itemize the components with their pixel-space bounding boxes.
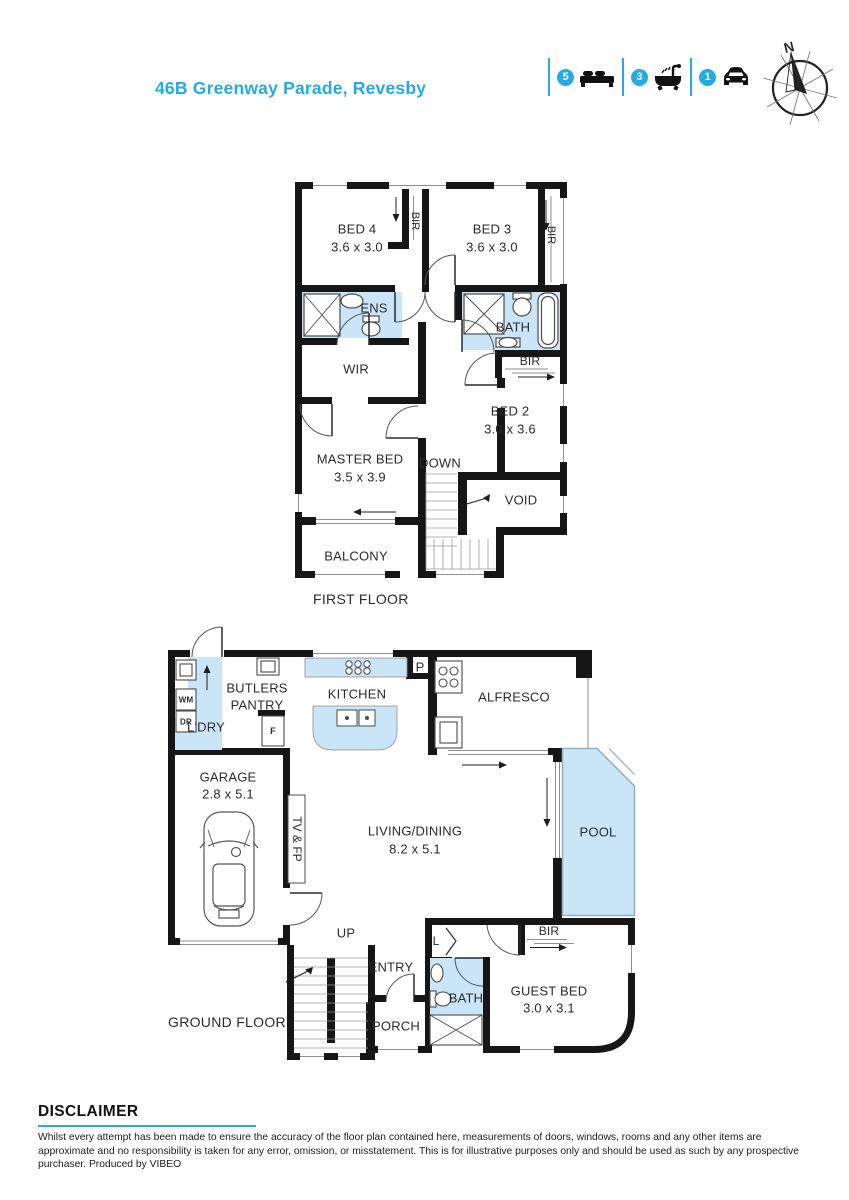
floorplan-graphics [0,0,849,1200]
disclaimer-body: Whilst every attempt has been made to en… [38,1131,816,1172]
alfresco-fixtures [435,661,462,748]
room-label-wir: WIR [343,362,369,377]
room-label-void: VOID [505,493,538,508]
stairs-up-label: UP [337,926,355,941]
room-label-pantry: PANTRY [231,698,284,713]
room-dims-guest: 3.0 x 3.1 [523,1001,575,1016]
compass-icon [763,51,837,125]
room-label-kitchen: KITCHEN [328,687,386,702]
fixture-label-fridge: F [270,726,276,736]
room-label-bed3: BED 3 [473,222,512,237]
room-label-ensuite: ENS [360,301,387,316]
room-label-entry: ENTRY [369,960,414,975]
room-label-laundry: L'DRY [187,720,225,735]
room-label-bed4: BED 4 [338,222,377,237]
fixture-label-wm: WM [179,696,194,705]
room-label-bath-ff: BATH [496,320,531,335]
disclaimer-underline [38,1125,256,1127]
first-floor-title: FIRST FLOOR [313,591,409,607]
room-label-porch: PORCH [372,1019,420,1034]
room-dims-living: 8.2 x 5.1 [389,842,441,857]
room-label-bir-bed4: BIR [409,212,421,230]
room-label-living: LIVING/DINING [368,824,462,839]
room-dims-garage: 2.8 x 5.1 [202,787,254,802]
ground-floor-title: GROUND FLOOR [168,1014,286,1030]
room-label-master: MASTER BED [317,452,404,467]
room-label-butlers: BUTLERS [226,681,287,696]
room-label-bir-bed2: BIR [520,354,541,368]
room-label-pantry-p: P [416,660,425,675]
room-label-garage: GARAGE [200,770,257,785]
room-label-alfresco: ALFRESCO [478,690,550,705]
room-dims-master: 3.5 x 3.9 [334,470,386,485]
room-label-pool: POOL [580,825,617,840]
disclaimer-heading: DISCLAIMER [38,1103,138,1121]
label-tv-fireplace: TV & FP [290,816,304,861]
stairs-down-label: DOWN [419,456,461,471]
room-label-bath-gf: BATH [449,991,484,1006]
room-label-bir-guest: BIR [539,924,560,938]
floorplan-page: 46B Greenway Parade, Revesby 5 3 1 [0,0,849,1200]
room-dims-bed4: 3.6 x 3.0 [331,240,383,255]
room-label-guest: GUEST BED [511,984,588,999]
room-label-bed2: BED 2 [491,404,530,419]
room-dims-bed2: 3.0 x 3.6 [484,422,536,437]
room-label-bir-bed3: BIR [545,226,557,244]
fixture-label-dr: DR [180,718,192,727]
room-label-balcony: BALCONY [324,549,388,564]
car-top-view [200,812,258,926]
room-dims-bed3: 3.6 x 3.0 [466,240,518,255]
room-label-linen: L [433,934,440,948]
